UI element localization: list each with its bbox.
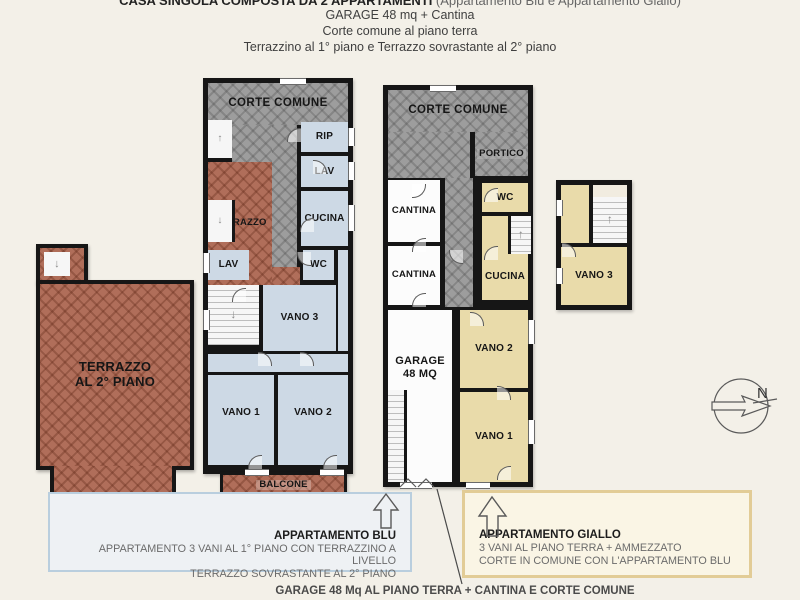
window-symbol — [245, 469, 269, 476]
room-label: VANO 2 — [475, 343, 513, 355]
room-label: LAV — [219, 259, 239, 271]
room-label: PORTICO — [477, 149, 526, 160]
room-label: VANO 1 — [222, 407, 260, 419]
room-label: CORTE COMUNE — [408, 104, 507, 117]
legend-blue-line2: TERRAZZO SOVRASTANTE AL 2° PIANO — [60, 568, 396, 580]
plan-first-floor: CORTE COMUNE ↑ TERRAZZO ↓ RIP LAV CUCINA… — [203, 78, 353, 474]
window-symbol — [348, 205, 355, 231]
legend-apartment-blue: APPARTAMENTO BLU APPARTAMENTO 3 VANI AL … — [48, 492, 412, 572]
room-lav: LAV — [208, 250, 249, 280]
room-rip: RIP — [301, 122, 348, 152]
page-title-main: CASA SINGOLA COMPOSTA DA 2 APPARTAMENTI — [119, 0, 432, 8]
room-label: CANTINA — [392, 206, 436, 217]
window-symbol — [203, 310, 210, 330]
room-label: VANO 3 — [575, 270, 613, 282]
room-corte-comune-1p: CORTE COMUNE — [208, 83, 348, 125]
stair-icon: ↑ — [508, 216, 531, 254]
legend-yellow-line2: CORTE IN COMUNE CON L'APPARTAMENTO BLU — [479, 555, 739, 567]
subtitle-corte: Corte comune al piano terra — [0, 24, 800, 38]
room-cantina-2: CANTINA — [388, 246, 440, 305]
hallway — [208, 354, 348, 372]
subtitle-terrazzo: Terrazzino al 1° piano e Terrazzo sovras… — [0, 40, 800, 54]
window-symbol — [528, 420, 535, 444]
room-label: 48 MQ — [403, 368, 437, 381]
room-vano1-1p: VANO 1 — [208, 375, 274, 465]
paving-corridor — [445, 178, 473, 307]
room-vano1-pt: VANO 1 — [460, 392, 528, 482]
legend-apartment-yellow: APPARTAMENTO GIALLO 3 VANI AL PIANO TERR… — [462, 490, 752, 578]
paving-corte-left — [388, 132, 470, 178]
window-symbol — [348, 162, 355, 180]
room-mezz-top — [561, 185, 589, 243]
footer-note: GARAGE 48 Mq AL PIANO TERRA + CANTINA E … — [110, 585, 800, 597]
room-label: WC — [496, 192, 513, 204]
room-label: VANO 2 — [294, 407, 332, 419]
page-title: CASA SINGOLA COMPOSTA DA 2 APPARTAMENTI … — [0, 0, 800, 8]
window-symbol — [430, 85, 456, 92]
terrace-2p: TERRAZZO AL 2° PIANO — [36, 280, 194, 470]
legend-yellow-line1: 3 VANI AL PIANO TERRA + AMMEZZATO — [479, 542, 739, 554]
compass-north-label: N — [757, 385, 768, 402]
room-corte-comune-pt: CORTE COMUNE — [388, 90, 528, 132]
legend-blue-line1: APPARTAMENTO 3 VANI AL 1° PIANO CON TERR… — [60, 543, 396, 567]
window-symbol — [203, 253, 210, 273]
corridor-right — [338, 250, 348, 351]
stair-landing — [593, 185, 627, 197]
room-label: GARAGE — [395, 355, 444, 368]
room-label: WC — [310, 259, 327, 271]
room-label: BALCONE — [256, 480, 310, 491]
subtitle-garage: GARAGE 48 mq + Cantina — [0, 8, 800, 22]
stair-up-icon: ↑ — [208, 120, 232, 158]
terrace-label: TERRAZZO — [79, 360, 151, 375]
room-label: RIP — [316, 131, 333, 143]
window-symbol — [348, 128, 355, 146]
window-symbol — [400, 482, 432, 489]
window-symbol — [528, 320, 535, 344]
stair-icon: ↑ — [593, 197, 627, 243]
legend-blue-title: APPARTAMENTO BLU — [60, 530, 396, 542]
stair-down-icon: ↓ — [208, 200, 235, 242]
garage-stair-icon — [388, 390, 407, 482]
window-symbol — [556, 200, 563, 216]
floorplan-page: CASA SINGOLA COMPOSTA DA 2 APPARTAMENTI … — [0, 0, 800, 600]
compass-north-icon: N — [712, 379, 777, 433]
terrace-label: AL 2° PIANO — [75, 375, 155, 390]
room-label: CUCINA — [485, 271, 525, 283]
terrace-extension — [50, 466, 176, 492]
room-label: VANO 3 — [281, 312, 319, 324]
window-symbol — [280, 78, 306, 85]
paving-terrazzo-ext — [272, 267, 300, 285]
leader-line — [437, 489, 462, 584]
plan-ground-floor: CORTE COMUNE PORTICO CANTINA CANTINA WC … — [383, 85, 533, 487]
page-title-note: (Appartamento Blu e Appartamento Giallo) — [432, 0, 681, 8]
window-symbol — [466, 482, 490, 489]
room-label: CANTINA — [392, 270, 436, 281]
room-label: CORTE COMUNE — [228, 97, 327, 110]
window-symbol — [320, 469, 344, 476]
paving-corte-left — [232, 125, 272, 162]
stair-down-icon: ↓ — [44, 252, 70, 276]
room-vano2-1p: VANO 2 — [278, 375, 348, 465]
room-portico: PORTICO — [475, 132, 528, 176]
legend-yellow-title: APPARTAMENTO GIALLO — [479, 529, 739, 541]
window-symbol — [556, 268, 563, 284]
room-label: VANO 1 — [475, 431, 513, 443]
room-vano3-1p: VANO 3 — [263, 285, 336, 351]
terrace-stair-block: ↓ — [36, 244, 88, 284]
paving-corridor — [272, 125, 297, 267]
